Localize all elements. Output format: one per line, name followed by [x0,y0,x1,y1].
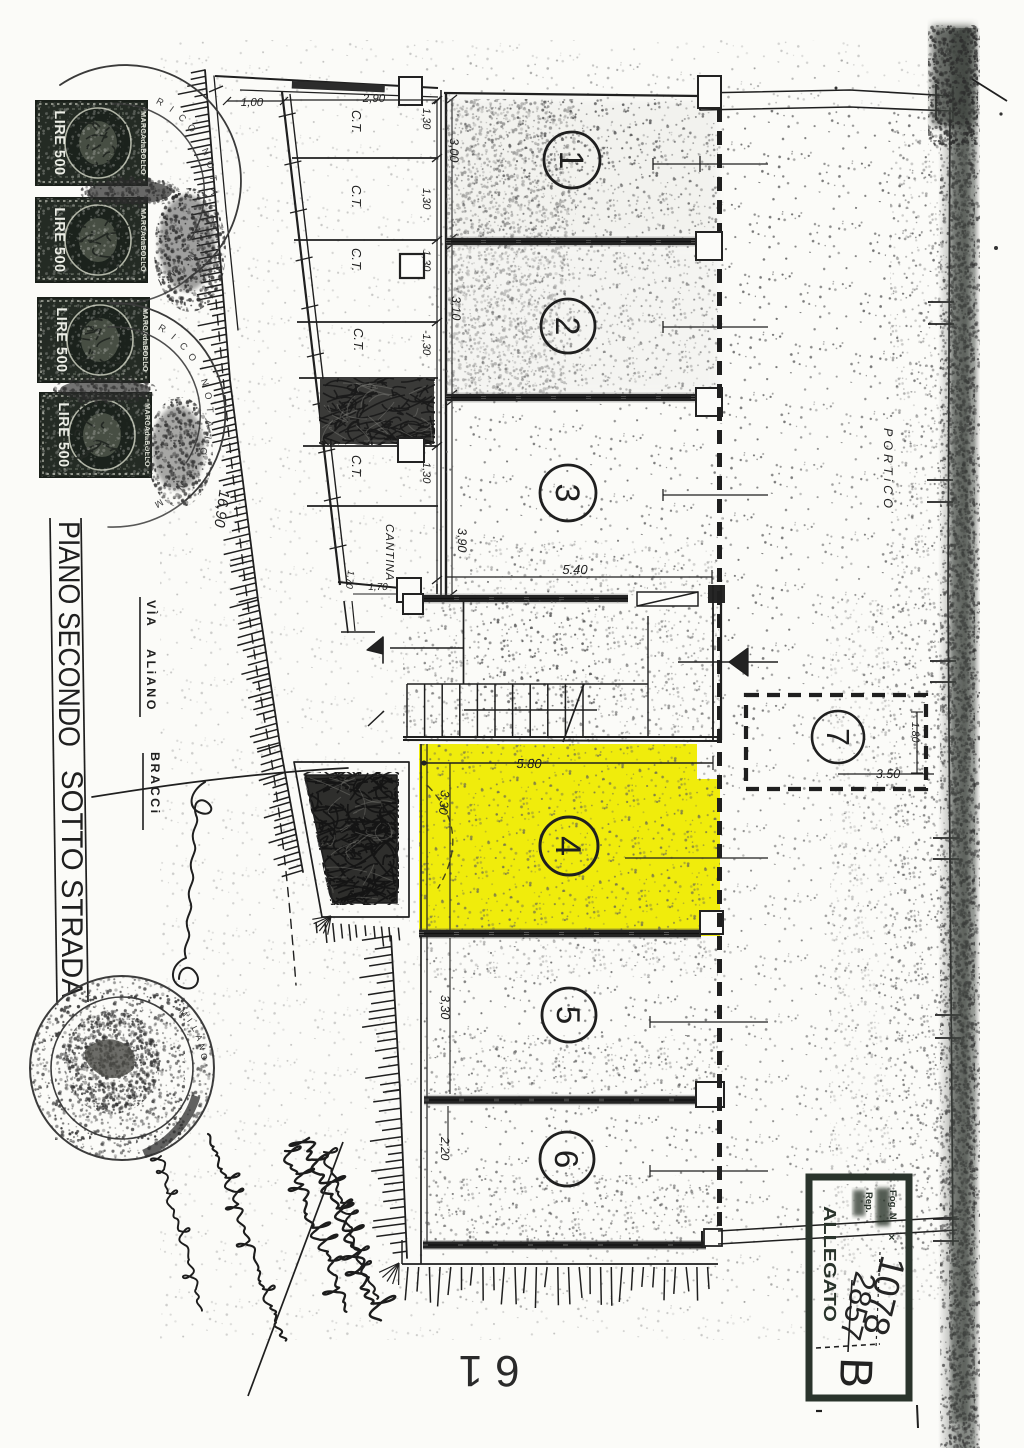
svg-text:C.T.: C.T. [349,455,364,478]
svg-text:1: 1 [552,151,590,170]
svg-text:VÌA: VÌA [144,600,159,628]
svg-text:-1,30: -1,30 [420,330,432,356]
svg-text:3,30: 3,30 [436,790,452,816]
svg-text:2,90: 2,90 [362,93,386,105]
svg-text:1.80: 1.80 [909,722,921,743]
svg-text:A: A [208,189,219,196]
svg-text:2: 2 [548,317,586,336]
svg-text:1,30: 1,30 [420,188,432,210]
svg-text:4: 4 [548,836,589,856]
svg-text:C.T.: C.T. [351,328,366,351]
svg-text:B: B [830,1357,883,1389]
svg-text:C.T.: C.T. [349,110,364,133]
svg-text:ALLEGATO: ALLEGATO [820,1206,840,1322]
svg-text:6 1: 6 1 [458,1346,519,1395]
svg-text:ALiANO: ALiANO [144,649,158,712]
svg-text:6: 6 [548,1150,585,1168]
svg-text:C.T.: C.T. [349,185,364,208]
svg-text:1,00: 1,00 [241,97,264,109]
svg-text:3,30: 3,30 [438,995,452,1019]
svg-text:PIANO SECONDO: PIANO SECONDO [52,521,85,747]
svg-text:T: T [204,407,215,414]
svg-text:C.T.: C.T. [349,248,364,271]
svg-text:3: 3 [548,484,586,503]
svg-text:2,20: 2,20 [438,1136,452,1161]
svg-text:1,30: 1,30 [420,250,432,272]
svg-text:5: 5 [550,1006,587,1024]
svg-text:CANTINA: CANTINA [383,524,395,581]
svg-text:1,70: 1,70 [368,582,388,593]
svg-text:1,30: 1,30 [420,108,432,130]
svg-text:5.40: 5.40 [562,562,588,577]
svg-text:1,30: 1,30 [420,462,432,484]
svg-text:SOTTO STRADA: SOTTO STRADA [55,770,88,998]
svg-text:1,70: 1,70 [343,570,356,590]
svg-text:PORTiCO: PORTiCO [881,428,895,512]
svg-text:7: 7 [820,728,856,746]
svg-text:×: × [885,1234,897,1240]
svg-text:BRACCi: BRACCi [148,752,162,816]
